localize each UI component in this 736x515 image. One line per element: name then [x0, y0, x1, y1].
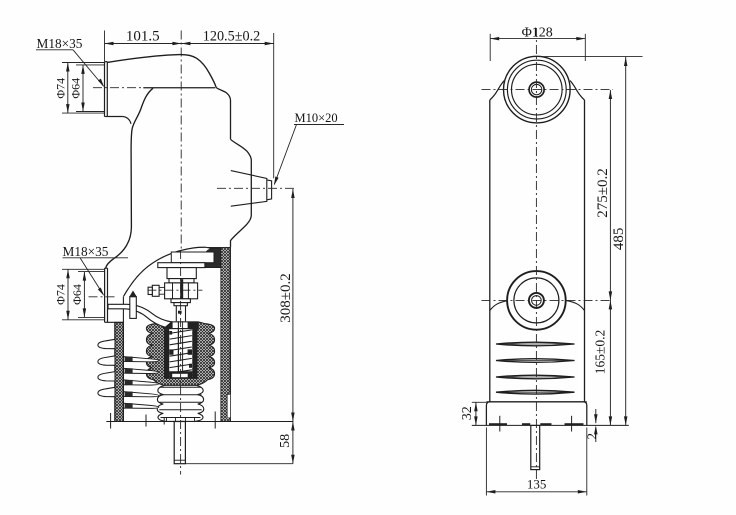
svg-text:308±0.2: 308±0.2: [278, 273, 294, 322]
svg-text:M18×35: M18×35: [63, 244, 109, 259]
svg-text:M18×35: M18×35: [37, 36, 83, 51]
svg-text:Φ64: Φ64: [70, 284, 84, 305]
svg-text:165±0.2: 165±0.2: [593, 330, 608, 375]
svg-text:275±0.2: 275±0.2: [595, 168, 611, 217]
svg-text:485: 485: [611, 228, 627, 251]
svg-text:32: 32: [460, 406, 475, 420]
svg-text:120.5±0.2: 120.5±0.2: [203, 28, 260, 44]
svg-text:101.5: 101.5: [126, 29, 160, 45]
svg-text:M10×20: M10×20: [295, 111, 338, 125]
svg-text:2: 2: [584, 433, 599, 440]
svg-text:Φ128: Φ128: [522, 26, 553, 41]
svg-text:Φ74: Φ74: [53, 78, 67, 99]
svg-text:58: 58: [278, 434, 293, 448]
svg-text:Φ74: Φ74: [54, 284, 68, 305]
svg-text:Φ64: Φ64: [69, 78, 83, 99]
